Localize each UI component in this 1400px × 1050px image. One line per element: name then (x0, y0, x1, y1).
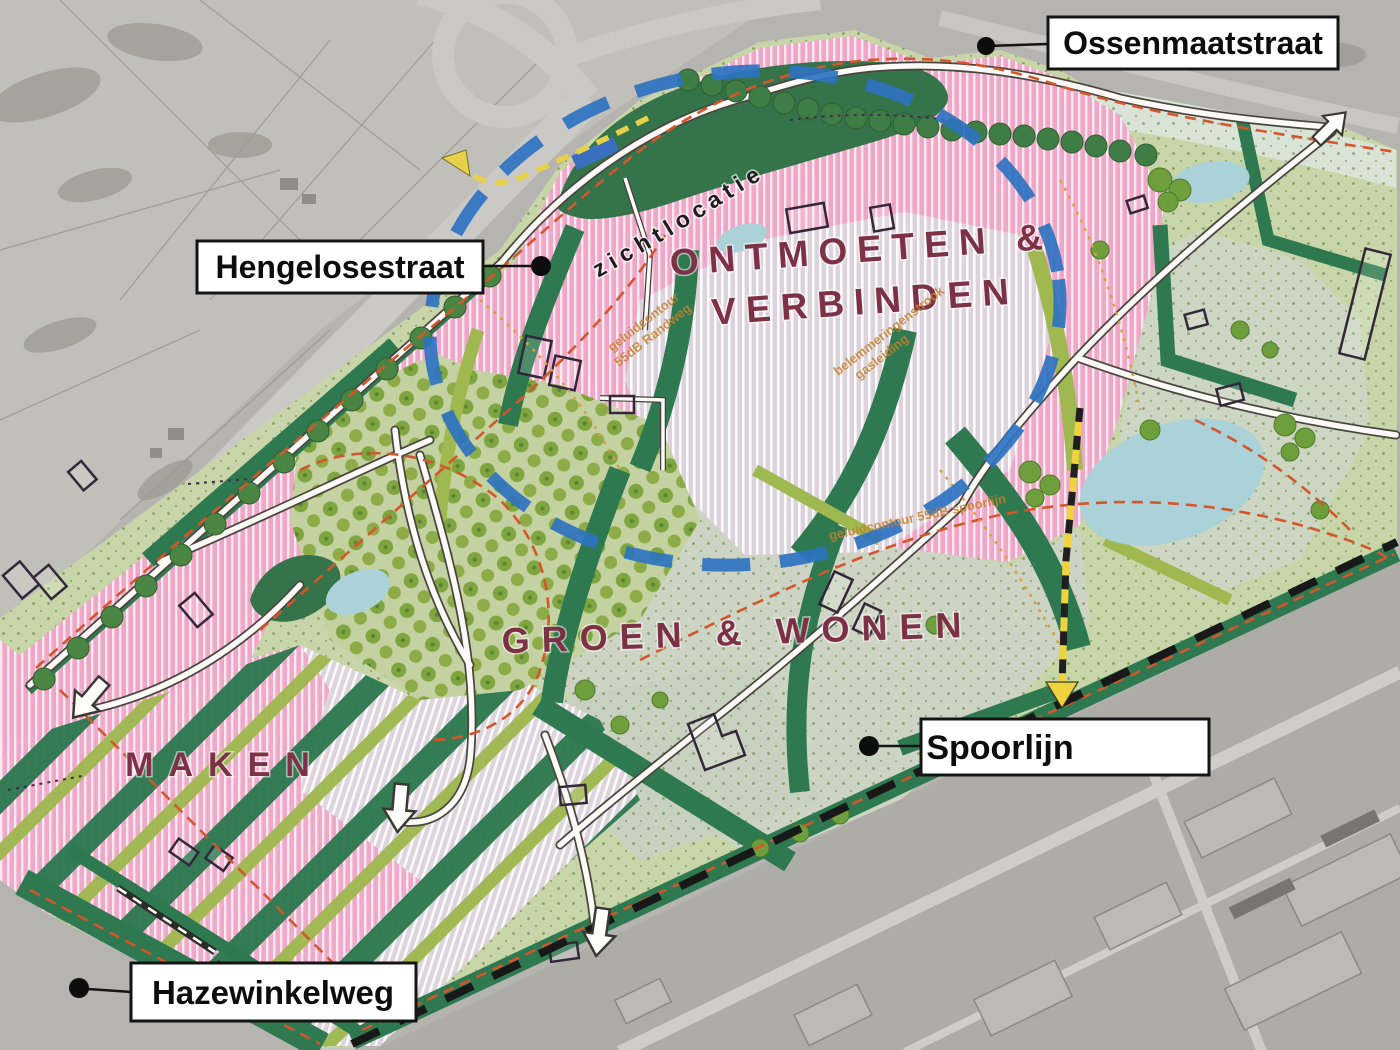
callout-dot-hengelosestraat (531, 256, 551, 276)
street-label-hengelosestraat: Hengelosestraat (216, 249, 465, 285)
street-label-hazewinkelweg: Hazewinkelweg (152, 974, 394, 1011)
zone-label-maken: MAKEN (125, 746, 325, 784)
street-label-spoorlijn: Spoorlijn (926, 729, 1073, 767)
callout-dot-ossenmaatstraat (977, 37, 995, 55)
street-label-ossenmaatstraat: Ossenmaatstraat (1063, 25, 1323, 61)
callout-dot-spoorlijn (859, 736, 879, 756)
masterplan-map: ONTMOETEN & VERBINDEN GROEN & WONEN MAKE… (0, 0, 1400, 1050)
map-canvas: ONTMOETEN & VERBINDEN GROEN & WONEN MAKE… (0, 0, 1400, 1050)
callout-dot-hazewinkelweg (69, 978, 89, 998)
